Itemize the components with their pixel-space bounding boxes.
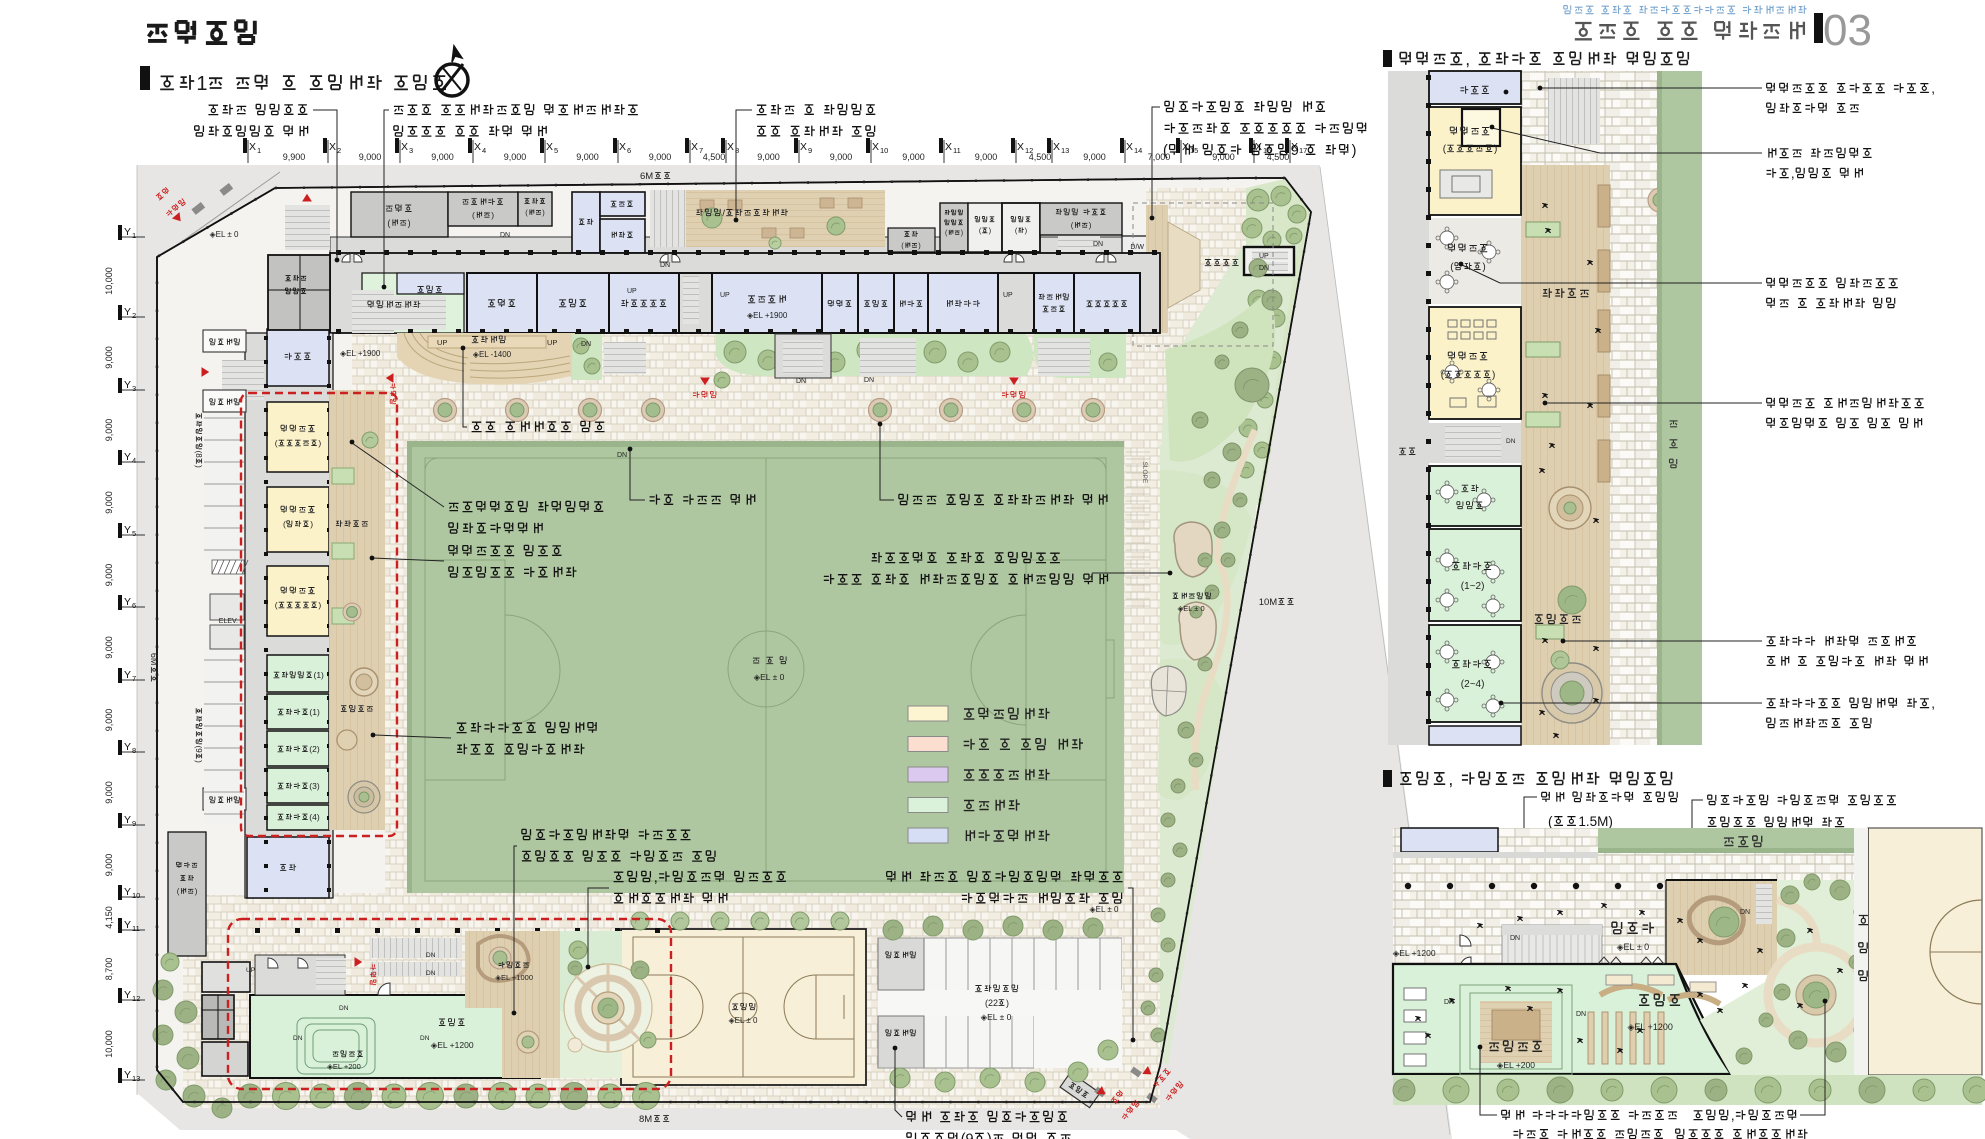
svg-text:9,000: 9,000 [104,781,114,804]
svg-text:X: X [727,141,734,153]
svg-text:UP: UP [437,338,447,347]
svg-text:): ) [1089,221,1092,230]
svg-text:ELEV.: ELEV. [219,618,238,625]
svg-text:UP: UP [1003,292,1013,299]
svg-text:DN: DN [426,970,436,977]
svg-text:◈EL ± 0: ◈EL ± 0 [1090,905,1119,914]
svg-text:Y: Y [124,886,131,898]
svg-text:◈EL +200: ◈EL +200 [1497,1060,1535,1070]
svg-text:Y: Y [124,524,131,536]
svg-text:3: 3 [132,384,136,393]
svg-text:03: 03 [1823,6,1872,55]
svg-text:,: , [1931,696,1935,711]
svg-text:,: , [654,870,658,886]
svg-text:(3): (3) [309,781,320,791]
svg-text:(4): (4) [309,812,320,822]
svg-text:DN: DN [796,378,806,385]
svg-text:17: 17 [1299,146,1307,155]
svg-text:DN: DN [426,952,436,959]
svg-text:◈EL +1200: ◈EL +1200 [431,1040,474,1050]
svg-text:(22: (22 [985,998,998,1008]
svg-text:9: 9 [808,146,812,155]
svg-text:DN: DN [864,377,874,384]
svg-text:◈EL ± 0: ◈EL ± 0 [981,1012,1012,1022]
svg-text:◈EL ± 0: ◈EL ± 0 [729,1016,758,1025]
svg-text:X: X [401,141,408,153]
svg-text:Y: Y [124,226,131,238]
svg-text:DN: DN [1576,1011,1586,1018]
svg-text:(9: (9 [961,1132,974,1139]
svg-text:(1): (1) [309,707,320,717]
svg-text:6: 6 [627,146,631,155]
svg-text:8M: 8M [639,1114,652,1125]
svg-text:): ) [310,519,313,529]
svg-text:13: 13 [132,1074,140,1083]
svg-text:DN: DN [581,341,591,348]
svg-text:): ) [1492,370,1495,381]
svg-text:(1~2): (1~2) [1461,581,1485,592]
svg-text:(: ( [472,210,475,220]
svg-text:◈EL +1900: ◈EL +1900 [340,349,381,358]
svg-text:9: 9 [1291,143,1299,159]
svg-text:3: 3 [409,146,413,155]
svg-text:(: ( [283,519,286,529]
svg-text:X: X [691,141,698,153]
svg-text:(: ( [387,218,390,228]
svg-text:Y: Y [124,919,131,931]
svg-text:X: X [872,141,879,153]
svg-text:DN: DN [1740,909,1750,916]
svg-text:D/W: D/W [1130,244,1144,251]
svg-text:4: 4 [132,456,136,465]
svg-text:,: , [1731,1108,1735,1123]
svg-text:): ) [318,600,321,610]
svg-text:(: ( [1548,814,1553,829]
svg-text:9,000: 9,000 [649,152,672,162]
svg-text:): ) [491,210,494,220]
svg-text:10,000: 10,000 [104,267,114,295]
svg-text:DN: DN [420,1035,430,1042]
svg-text:,: , [1791,166,1795,181]
svg-text:DN: DN [339,1005,349,1012]
svg-text:Y: Y [124,1069,131,1081]
svg-text:UP: UP [246,967,255,974]
svg-text:): ) [195,887,198,896]
svg-text:10: 10 [880,146,888,155]
svg-text:◈EL ± 0: ◈EL ± 0 [1178,604,1205,613]
svg-text:14: 14 [1134,146,1142,155]
svg-text:4,500: 4,500 [1029,152,1052,162]
svg-text:9,000: 9,000 [104,419,114,442]
svg-text:DN: DN [617,452,627,459]
svg-text:9,900: 9,900 [283,152,306,162]
svg-text:(1): (1) [314,670,325,680]
svg-text:(: ( [275,600,278,610]
svg-text:Y: Y [124,989,131,1001]
svg-text:): ) [961,230,963,237]
svg-text:4,500: 4,500 [1267,152,1290,162]
svg-text:11: 11 [132,924,140,933]
svg-text:5: 5 [554,146,558,155]
svg-text:SLOPE: SLOPE [1141,462,1148,484]
svg-text:6M: 6M [640,171,653,182]
svg-text:X: X [249,141,256,153]
svg-text:9,000: 9,000 [1083,152,1106,162]
svg-text:9,000: 9,000 [104,346,114,369]
svg-text:9,000: 9,000 [975,152,998,162]
svg-text:X: X [619,141,626,153]
svg-text:2: 2 [337,146,341,155]
svg-text:10: 10 [132,891,140,900]
svg-text:Y: Y [124,741,131,753]
svg-text:9,000: 9,000 [104,636,114,659]
svg-text:(9: (9 [194,746,203,754]
svg-text:X: X [945,141,952,153]
svg-text:): ) [1006,998,1009,1008]
svg-text:9,000: 9,000 [104,564,114,587]
svg-text:◈EL +200: ◈EL +200 [327,1062,361,1071]
svg-text:/: / [722,208,725,219]
svg-text:9,000: 9,000 [576,152,599,162]
svg-text:(2): (2) [309,744,320,754]
svg-text:6: 6 [132,601,136,610]
svg-text:9,000: 9,000 [431,152,454,162]
svg-text:Y: Y [124,451,131,463]
svg-text:X: X [329,141,336,153]
svg-text:13: 13 [1061,146,1069,155]
svg-text:4,500: 4,500 [703,152,726,162]
svg-text:UP: UP [547,338,557,347]
svg-text:9,000: 9,000 [504,152,527,162]
svg-text:9,000: 9,000 [757,152,780,162]
svg-text:DN: DN [1259,265,1269,272]
svg-text:1: 1 [257,146,261,155]
svg-text:2: 2 [132,311,136,320]
svg-text:): ) [318,438,321,448]
svg-text:,: , [1448,769,1453,789]
svg-text:12: 12 [132,994,140,1003]
svg-text:◈EL ± 0: ◈EL ± 0 [754,672,785,682]
svg-text:): ) [1482,262,1485,273]
svg-text:9,000: 9,000 [104,491,114,514]
svg-text:): ) [1352,143,1357,159]
svg-text:DN: DN [500,232,510,239]
svg-text:X: X [474,141,481,153]
svg-text:6M: 6M [149,653,159,666]
svg-text:7: 7 [132,674,136,683]
svg-text:8,700: 8,700 [104,958,114,981]
svg-text:DN: DN [1093,241,1103,248]
svg-text:1.5M): 1.5M) [1578,814,1613,829]
svg-text:8: 8 [132,746,136,755]
svg-text:(8: (8 [194,451,203,459]
svg-text:UP: UP [1259,253,1269,260]
svg-text:(: ( [275,438,278,448]
svg-text:): ) [987,1132,992,1139]
svg-text:1: 1 [196,73,207,95]
svg-text:Y: Y [124,379,131,391]
svg-text:9,000: 9,000 [104,854,114,877]
svg-text:◈EL ± 0: ◈EL ± 0 [210,230,239,239]
svg-text:(: ( [1163,143,1168,159]
svg-text:DN: DN [293,1035,303,1042]
svg-text:): ) [194,760,203,763]
svg-text:Y: Y [124,669,131,681]
svg-text:(2~4): (2~4) [1461,679,1485,690]
svg-text:Y: Y [124,306,131,318]
svg-text:Y: Y [124,814,131,826]
svg-text:(: ( [177,887,180,896]
svg-text:◈EL -1400: ◈EL -1400 [473,350,512,359]
svg-text:UP: UP [627,288,637,295]
svg-text:Y: Y [124,596,131,608]
svg-text:◈EL +1900: ◈EL +1900 [747,311,788,320]
svg-text:◈EL ± 0: ◈EL ± 0 [1617,942,1650,952]
svg-text:): ) [194,465,203,468]
svg-text:UP: UP [720,292,730,299]
svg-text:X: X [1053,141,1060,153]
svg-text:,: , [1931,81,1935,96]
svg-text:(: ( [1071,221,1074,230]
svg-text:,: , [1465,49,1470,69]
svg-text:10M: 10M [1259,597,1278,608]
svg-text:9,000: 9,000 [359,152,382,162]
svg-text:◈EL +1200: ◈EL +1200 [1393,948,1436,958]
svg-text:): ) [408,218,411,228]
svg-text:X: X [546,141,553,153]
svg-text:9: 9 [132,819,136,828]
svg-text:9,000: 9,000 [104,709,114,732]
svg-text:9,000: 9,000 [1212,152,1235,162]
svg-text:1: 1 [132,231,136,240]
svg-text:9,000: 9,000 [902,152,925,162]
svg-text:DN: DN [660,262,670,269]
svg-text:4: 4 [482,146,486,155]
svg-text:DN: DN [1510,935,1520,942]
svg-text:11: 11 [953,146,961,155]
svg-text:X: X [1017,141,1024,153]
svg-text:): ) [1494,144,1497,155]
svg-text:X: X [1126,141,1133,153]
svg-text:10,000: 10,000 [104,1030,114,1058]
svg-text:◈EL +1200: ◈EL +1200 [1628,1022,1673,1032]
svg-text:4,150: 4,150 [104,906,114,929]
svg-text:DN: DN [1506,438,1516,445]
svg-text:X: X [800,141,807,153]
svg-text:9,000: 9,000 [830,152,853,162]
svg-text:5: 5 [132,529,136,538]
